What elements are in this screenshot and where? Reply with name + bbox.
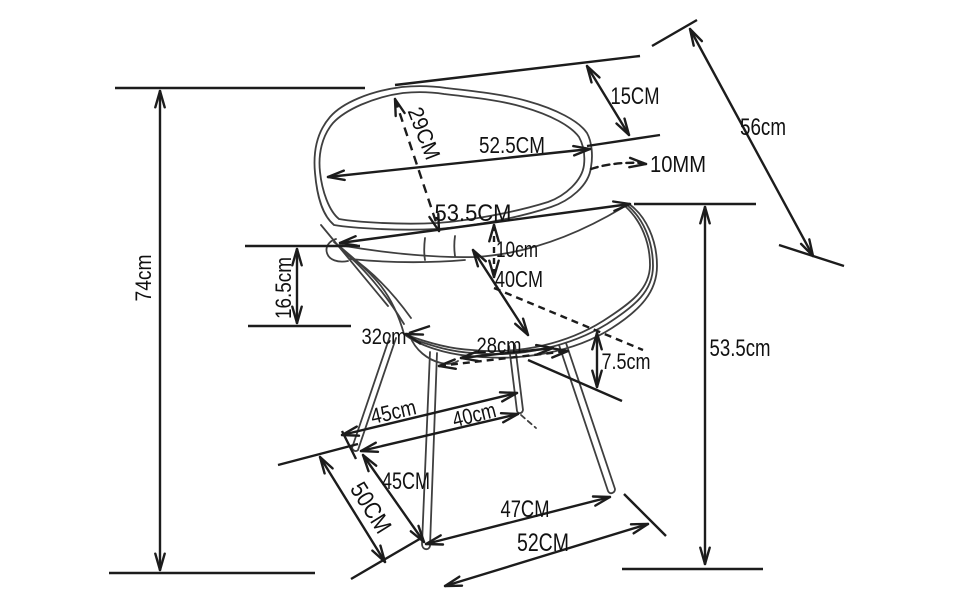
svg-text:16.5cm: 16.5cm — [271, 257, 296, 319]
svg-text:15CM: 15CM — [611, 83, 660, 110]
svg-text:7.5cm: 7.5cm — [602, 349, 651, 374]
svg-text:40CM: 40CM — [495, 266, 543, 292]
svg-text:53.5cm: 53.5cm — [710, 335, 771, 362]
svg-text:32cm: 32cm — [362, 324, 407, 349]
svg-text:10MM: 10MM — [650, 151, 706, 177]
svg-text:53.5CM: 53.5CM — [435, 200, 512, 227]
svg-text:74cm: 74cm — [131, 255, 156, 302]
svg-text:28cm: 28cm — [477, 333, 522, 358]
svg-text:10cm: 10cm — [496, 237, 538, 262]
svg-text:45CM: 45CM — [382, 468, 430, 495]
svg-text:52.5CM: 52.5CM — [479, 132, 545, 158]
svg-text:56cm: 56cm — [740, 114, 786, 141]
svg-text:52CM: 52CM — [517, 529, 569, 557]
svg-text:47CM: 47CM — [501, 496, 550, 523]
